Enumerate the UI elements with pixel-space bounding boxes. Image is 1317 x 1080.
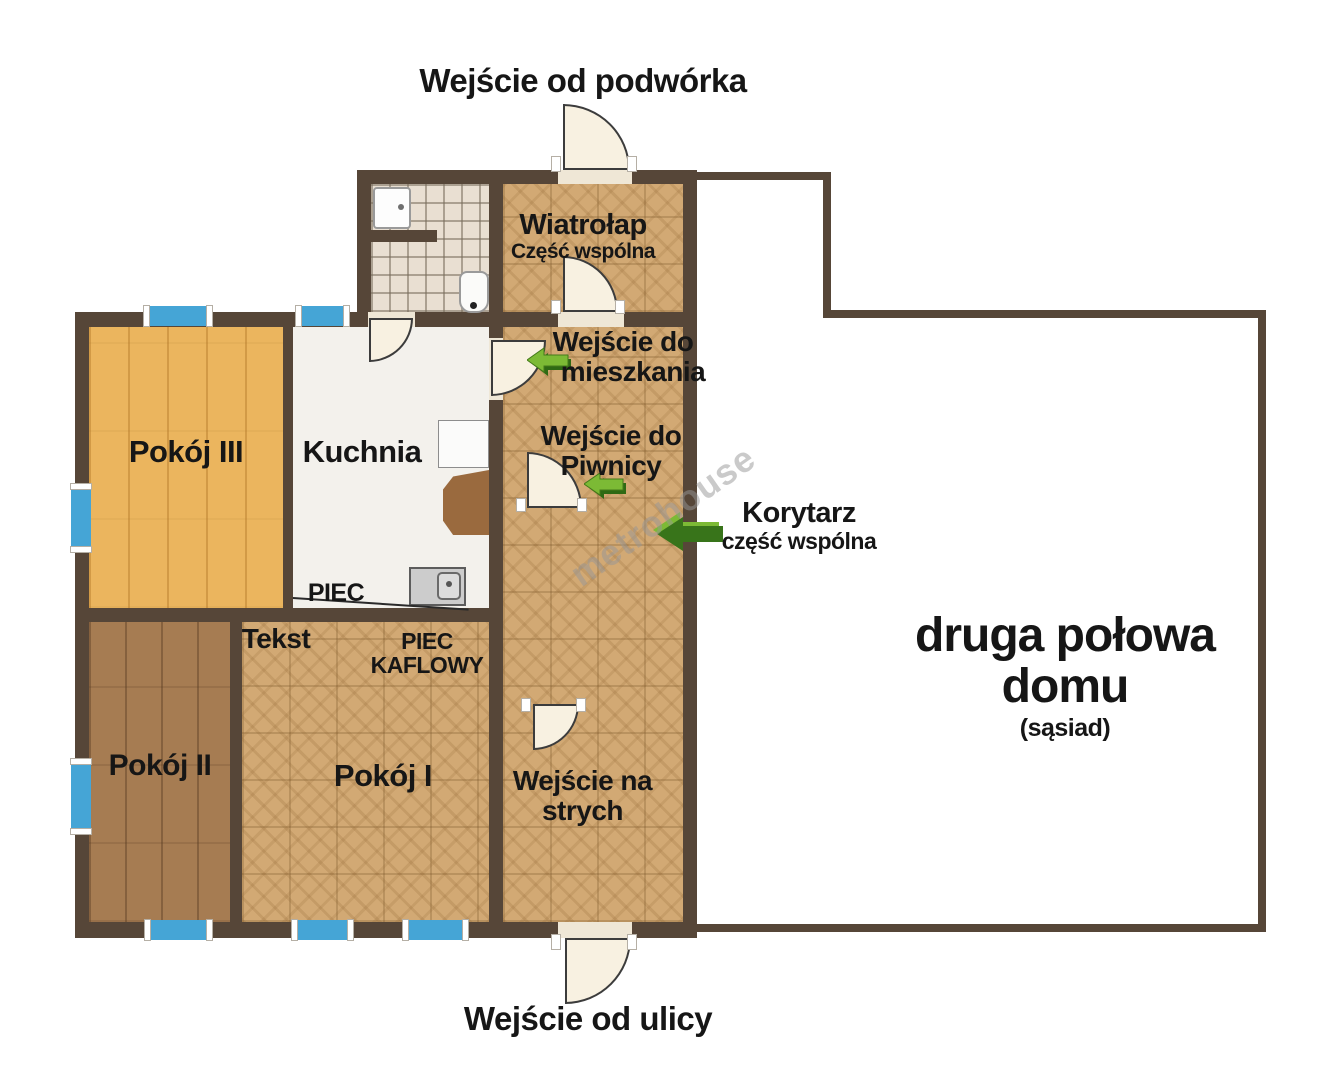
- neighbor-line1: druga połowa: [865, 611, 1265, 662]
- label-room2: Pokój II: [60, 750, 260, 782]
- window-cap: [70, 828, 92, 835]
- corridor-line1: Korytarz: [703, 498, 895, 529]
- neighbor-wall-step: [823, 310, 1266, 318]
- wall-top-strip: [357, 170, 697, 184]
- wiatrolap-name: Wiatrołap: [483, 210, 683, 241]
- window-room1-bottom-2: [408, 920, 464, 940]
- wall-lower-horizontal: [89, 608, 489, 622]
- window-cap: [144, 919, 151, 941]
- window-kitchen-top: [300, 306, 345, 326]
- door-street: [565, 938, 631, 1004]
- door-jamb: [551, 934, 561, 950]
- window-cap: [206, 919, 213, 941]
- label-kitchen: Kuchnia: [262, 436, 462, 469]
- window-room1-bottom-1: [297, 920, 349, 940]
- neighbor-wall-bottom: [697, 924, 1266, 932]
- window-room3-left: [71, 489, 91, 548]
- neighbor-line2: domu: [865, 662, 1265, 713]
- piec-kaflowy-line2: KAFLOWY: [357, 653, 497, 677]
- kitchen-sink-faucet: [446, 581, 452, 587]
- piec-kaflowy-line1: PIEC: [357, 629, 497, 653]
- floor-plan: Wejście od podwórka Wiatrołap Część wspó…: [0, 0, 1317, 1080]
- entrance-apartment-line1: Wejście do: [528, 327, 718, 357]
- window-cap: [462, 919, 469, 941]
- neighbor-wall-top: [697, 172, 831, 180]
- label-entrance-street: Wejście od ulicy: [428, 1002, 748, 1037]
- window-room3-top: [148, 306, 208, 326]
- entrance-attic-line2: strych: [490, 796, 675, 826]
- door-jamb: [551, 156, 561, 172]
- corridor-floor: [503, 327, 683, 922]
- window-cap: [143, 305, 150, 327]
- opening-wiatrolap-door: [558, 312, 624, 327]
- door-jamb: [516, 498, 526, 512]
- label-piec-kaflowy: PIEC KAFLOWY: [357, 629, 497, 678]
- wall-exterior-left: [75, 312, 89, 938]
- door-jamb: [551, 300, 561, 314]
- entrance-apartment-line2: mieszkania: [528, 357, 718, 387]
- window-room2-bottom: [150, 920, 208, 940]
- label-corridor: Korytarz część wspólna: [703, 498, 895, 553]
- label-entrance-apartment: Wejście do mieszkania: [528, 327, 718, 386]
- door-jamb: [521, 698, 531, 712]
- wall-bathroom-left: [357, 170, 371, 322]
- window-cap: [70, 483, 92, 490]
- label-wiatrolap: Wiatrołap Część wspólna: [483, 210, 683, 263]
- door-jamb: [627, 156, 637, 172]
- opening-street-door: [558, 922, 632, 938]
- entrance-attic-line1: Wejście na: [490, 766, 675, 796]
- opening-yard-door: [558, 170, 632, 184]
- window-cap: [206, 305, 213, 327]
- window-cap: [295, 305, 302, 327]
- shower-drain: [398, 204, 404, 210]
- entrance-basement-line1: Wejście do: [520, 421, 702, 451]
- window-cap: [70, 546, 92, 553]
- wall-bathroom-stub: [371, 230, 437, 242]
- label-room1: Pokój I: [283, 760, 483, 793]
- neighbor-line3: (sąsiad): [865, 715, 1265, 742]
- label-entrance-yard: Wejście od podwórka: [413, 64, 753, 99]
- door-jamb: [627, 934, 637, 950]
- label-entrance-basement: Wejście do Piwnicy: [520, 421, 702, 480]
- label-neighbor: druga połowa domu (sąsiad): [865, 611, 1265, 741]
- shower-tray: [373, 187, 411, 229]
- window-cap: [291, 919, 298, 941]
- toilet-button: [470, 302, 477, 309]
- door-jamb: [615, 300, 625, 314]
- wiatrolap-subtitle: Część wspólna: [483, 241, 683, 263]
- label-piec: PIEC: [296, 580, 376, 607]
- label-room3: Pokój III: [86, 436, 286, 469]
- corridor-line2: część wspólna: [703, 529, 895, 553]
- label-entrance-attic: Wejście na strych: [490, 766, 675, 825]
- window-cap: [347, 919, 354, 941]
- door-jamb: [576, 698, 586, 712]
- neighbor-wall-notch: [823, 172, 831, 318]
- window-cap: [402, 919, 409, 941]
- label-tekst: Tekst: [216, 624, 336, 654]
- window-cap: [343, 305, 350, 327]
- door-yard: [563, 104, 630, 170]
- entrance-basement-line2: Piwnicy: [520, 451, 702, 481]
